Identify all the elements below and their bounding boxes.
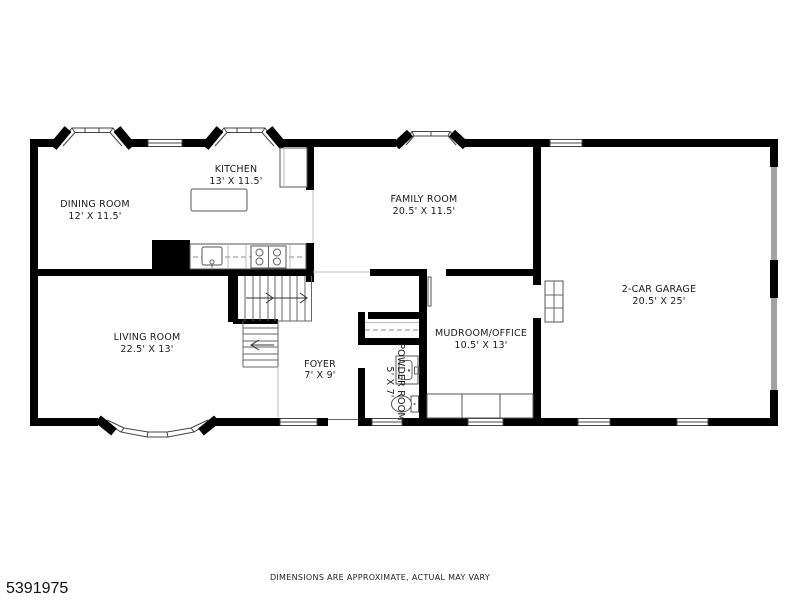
- staircase: [243, 276, 312, 417]
- powder-room-name: POWDER ROOM: [395, 343, 406, 421]
- kitchen-sink: [202, 247, 222, 268]
- dining-room-dims: 12' X 11.5': [68, 211, 121, 222]
- powder-room-dims: 5' X 7': [384, 366, 395, 397]
- living-room-label: LIVING ROOM 22.5' X 13': [114, 332, 181, 355]
- mudroom-dims: 10.5' X 13': [454, 340, 507, 351]
- foyer-name: FOYER: [304, 359, 336, 370]
- kitchen-island: [191, 189, 247, 211]
- floor-plan-page: DINING ROOM 12' X 11.5' KITCHEN 13' X 11…: [0, 0, 800, 600]
- foyer-label: FOYER 7' X 9': [304, 359, 336, 381]
- family-room-dims: 20.5' X 11.5': [393, 206, 456, 217]
- mudroom-door-leaf: [428, 277, 431, 306]
- bay-window-dining: [53, 128, 132, 147]
- mls-number: 5391975: [6, 580, 68, 597]
- doors: [428, 277, 563, 322]
- stove: [251, 246, 286, 268]
- foyer-dims: 7' X 9': [304, 370, 335, 381]
- bay-window-kitchen: [205, 128, 284, 147]
- living-room-dims: 22.5' X 13': [120, 344, 173, 355]
- bay-window-living-room: [98, 419, 217, 437]
- garage-label: 2-CAR GARAGE 20.5' X 25': [622, 284, 696, 307]
- footer: 5391975 DIMENSIONS ARE APPROXIMATE, ACTU…: [6, 573, 490, 597]
- dining-room-name: DINING ROOM: [60, 199, 129, 210]
- garage-door-1: [771, 167, 777, 260]
- living-room-name: LIVING ROOM: [114, 332, 181, 343]
- garage-entry-door: [545, 281, 563, 322]
- garage-dims: 20.5' X 25': [632, 296, 685, 307]
- mudroom-label: MUDROOM/OFFICE 10.5' X 13': [435, 328, 527, 351]
- mudroom-benches: [427, 394, 533, 418]
- garage-door-2: [771, 298, 777, 390]
- room-labels: DINING ROOM 12' X 11.5' KITCHEN 13' X 11…: [60, 164, 696, 421]
- disclaimer-text: DIMENSIONS ARE APPROXIMATE, ACTUAL MAY V…: [270, 573, 490, 582]
- family-room-name: FAMILY ROOM: [391, 194, 458, 205]
- family-room-label: FAMILY ROOM 20.5' X 11.5': [391, 194, 458, 217]
- refrigerator: [280, 148, 307, 187]
- chimney: [152, 240, 190, 276]
- kitchen-name: KITCHEN: [215, 164, 258, 175]
- bay-window-family-room: [396, 132, 466, 147]
- floor-plan: DINING ROOM 12' X 11.5' KITCHEN 13' X 11…: [0, 0, 800, 600]
- garage-name: 2-CAR GARAGE: [622, 284, 696, 295]
- closet: [365, 323, 419, 331]
- kitchen-label: KITCHEN 13' X 11.5': [209, 164, 262, 187]
- dining-room-label: DINING ROOM 12' X 11.5': [60, 199, 129, 222]
- kitchen-dims: 13' X 11.5': [209, 176, 262, 187]
- mudroom-name: MUDROOM/OFFICE: [435, 328, 527, 339]
